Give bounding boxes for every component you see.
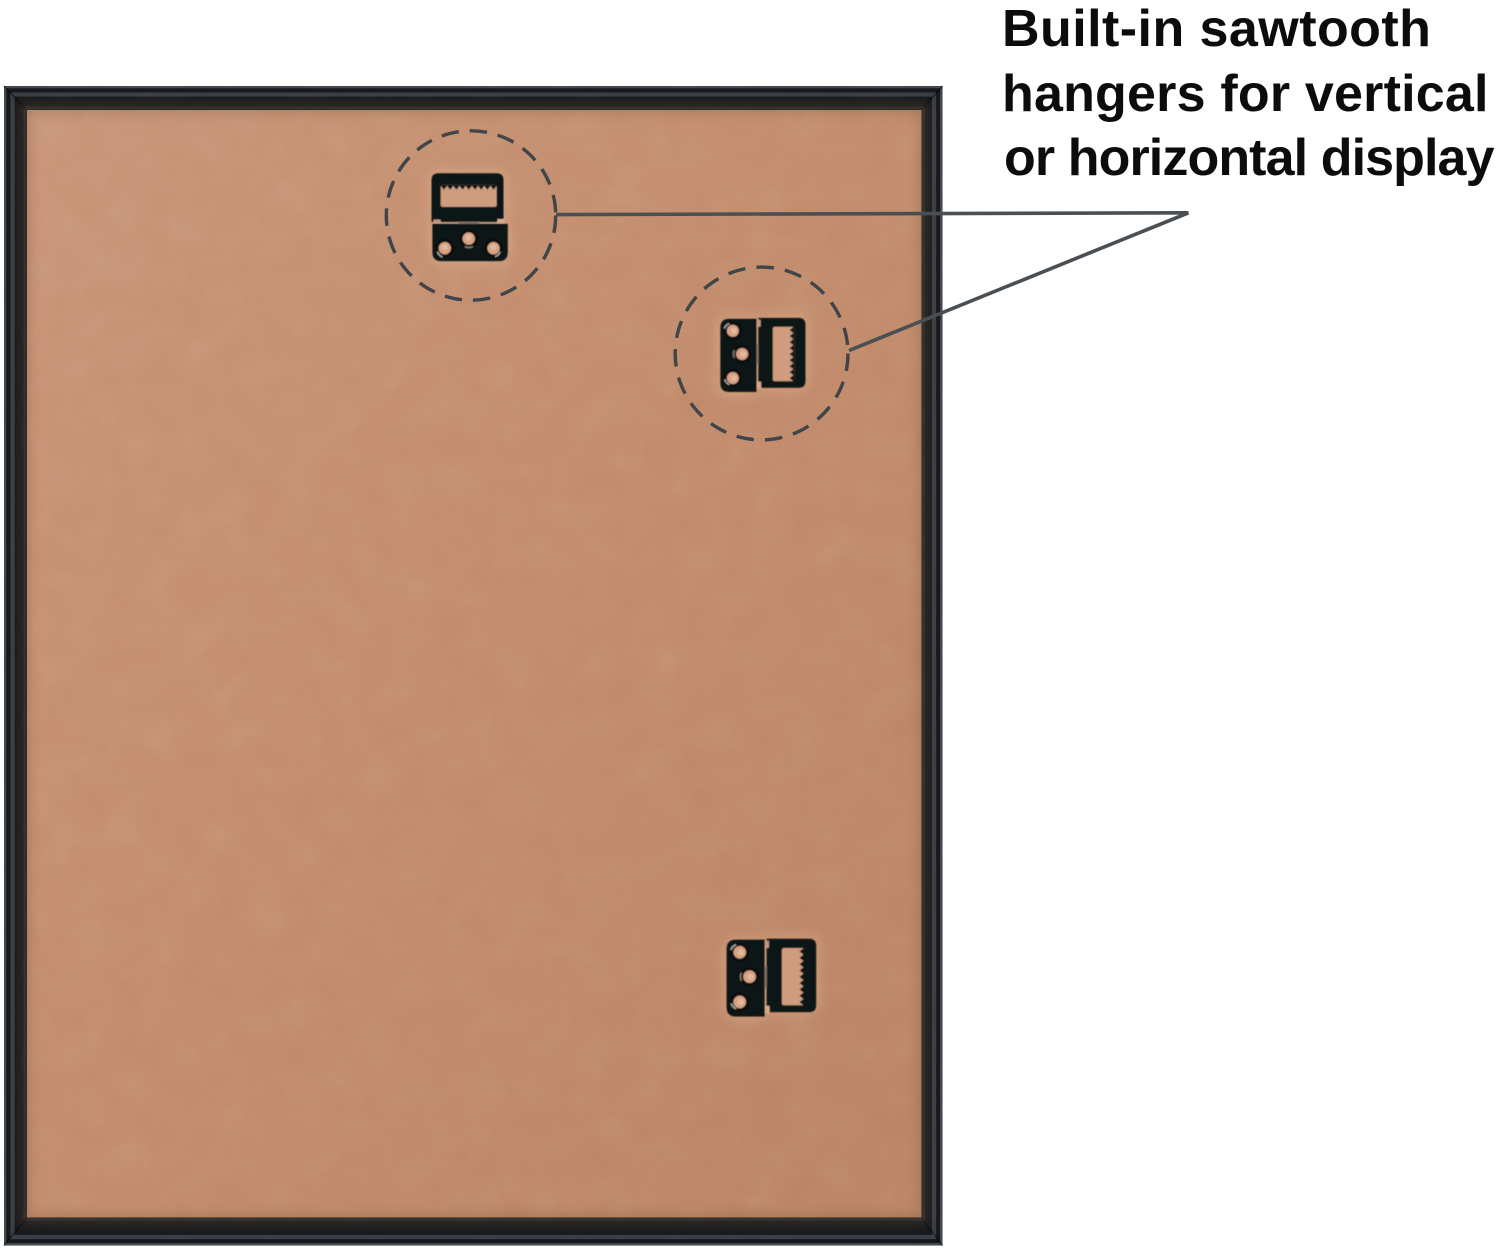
- svg-text:or horizontal display: or horizontal display: [1004, 129, 1495, 187]
- svg-text:Built-in sawtooth: Built-in sawtooth: [1002, 0, 1431, 58]
- svg-text:hangers for vertical: hangers for vertical: [1002, 65, 1489, 123]
